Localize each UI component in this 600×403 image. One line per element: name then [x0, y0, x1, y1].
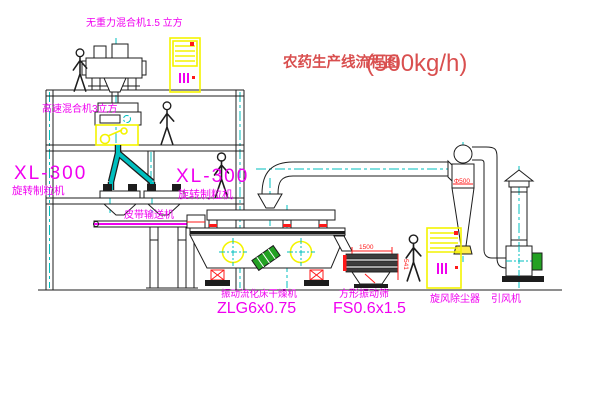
sieve-base-plate	[354, 284, 388, 288]
sieve-inlet-cap	[343, 255, 347, 271]
cyclone-top-outlet	[454, 145, 472, 163]
dryer-stub-flange-3	[319, 224, 327, 227]
label-dryer-name: 振动流化床干燥机	[221, 288, 298, 300]
label-granulator-left-name: 旋转制粒机	[12, 184, 65, 197]
label-sieve-name: 方形振动筛	[339, 287, 389, 300]
sieve-deck-2	[346, 261, 398, 266]
ground-cabinet-indicator	[454, 231, 458, 235]
gravity-mixer-body	[86, 58, 142, 78]
label-high-speed-mixer: 高速混合机3立方	[42, 102, 118, 115]
dryer-plenum	[207, 210, 335, 220]
fan-base	[502, 276, 544, 282]
cyclone-dia-dim: Φ500	[454, 178, 470, 185]
dryer-bed-strip	[190, 231, 345, 234]
granulator-left-deck	[100, 191, 140, 198]
sieve-length-dim: 1500	[359, 244, 374, 251]
label-granulator-left-model: XL-300	[14, 163, 87, 184]
dryer-base-right	[304, 280, 329, 286]
duct-reducer	[448, 161, 452, 181]
diagram-canvas: 1500 541 Φ500	[0, 0, 600, 403]
label-granulator-right-name: 旋转制粒机	[178, 187, 233, 201]
label-granulator-right-model: XL-300	[176, 166, 249, 187]
dryer-stub-flange-1	[209, 224, 217, 227]
label-fan: 引风机	[491, 292, 521, 305]
gravity-mixer-inlet	[94, 46, 106, 58]
sieve-deck-1	[346, 254, 398, 259]
cad-flowsheet: 1500 541 Φ500	[0, 0, 600, 403]
cabinet-indicator	[190, 42, 194, 46]
page-title-capacity: (500kg/h)	[366, 50, 467, 77]
sieve-deck-3	[346, 268, 398, 272]
dryer-base-left	[205, 280, 230, 286]
dryer-stub-flange-2	[283, 224, 291, 227]
fan-motor	[532, 253, 542, 270]
gravity-mixer-cap-right	[142, 61, 146, 75]
stack-cap-base	[509, 181, 529, 187]
label-belt-conveyor: 皮带输送机	[124, 208, 174, 221]
granulator-left-motor-a	[103, 184, 112, 191]
cabinet-indicator-2	[192, 76, 195, 79]
sieve-height-dim: 541	[402, 259, 409, 270]
label-dryer-model: ZLG6x0.75	[217, 300, 296, 317]
label-cyclone: 旋风除尘器	[430, 292, 480, 305]
granulator-left-motor-b	[128, 184, 137, 191]
gravity-mixer-motor	[112, 44, 128, 58]
label-sieve-model: FS0.6x1.5	[333, 300, 406, 317]
granulator-right-motor-a	[147, 184, 156, 191]
label-gravity-mixer: 无重力混合机1.5 立方	[86, 16, 183, 29]
ground-cabinet-indicator-2	[455, 266, 458, 269]
